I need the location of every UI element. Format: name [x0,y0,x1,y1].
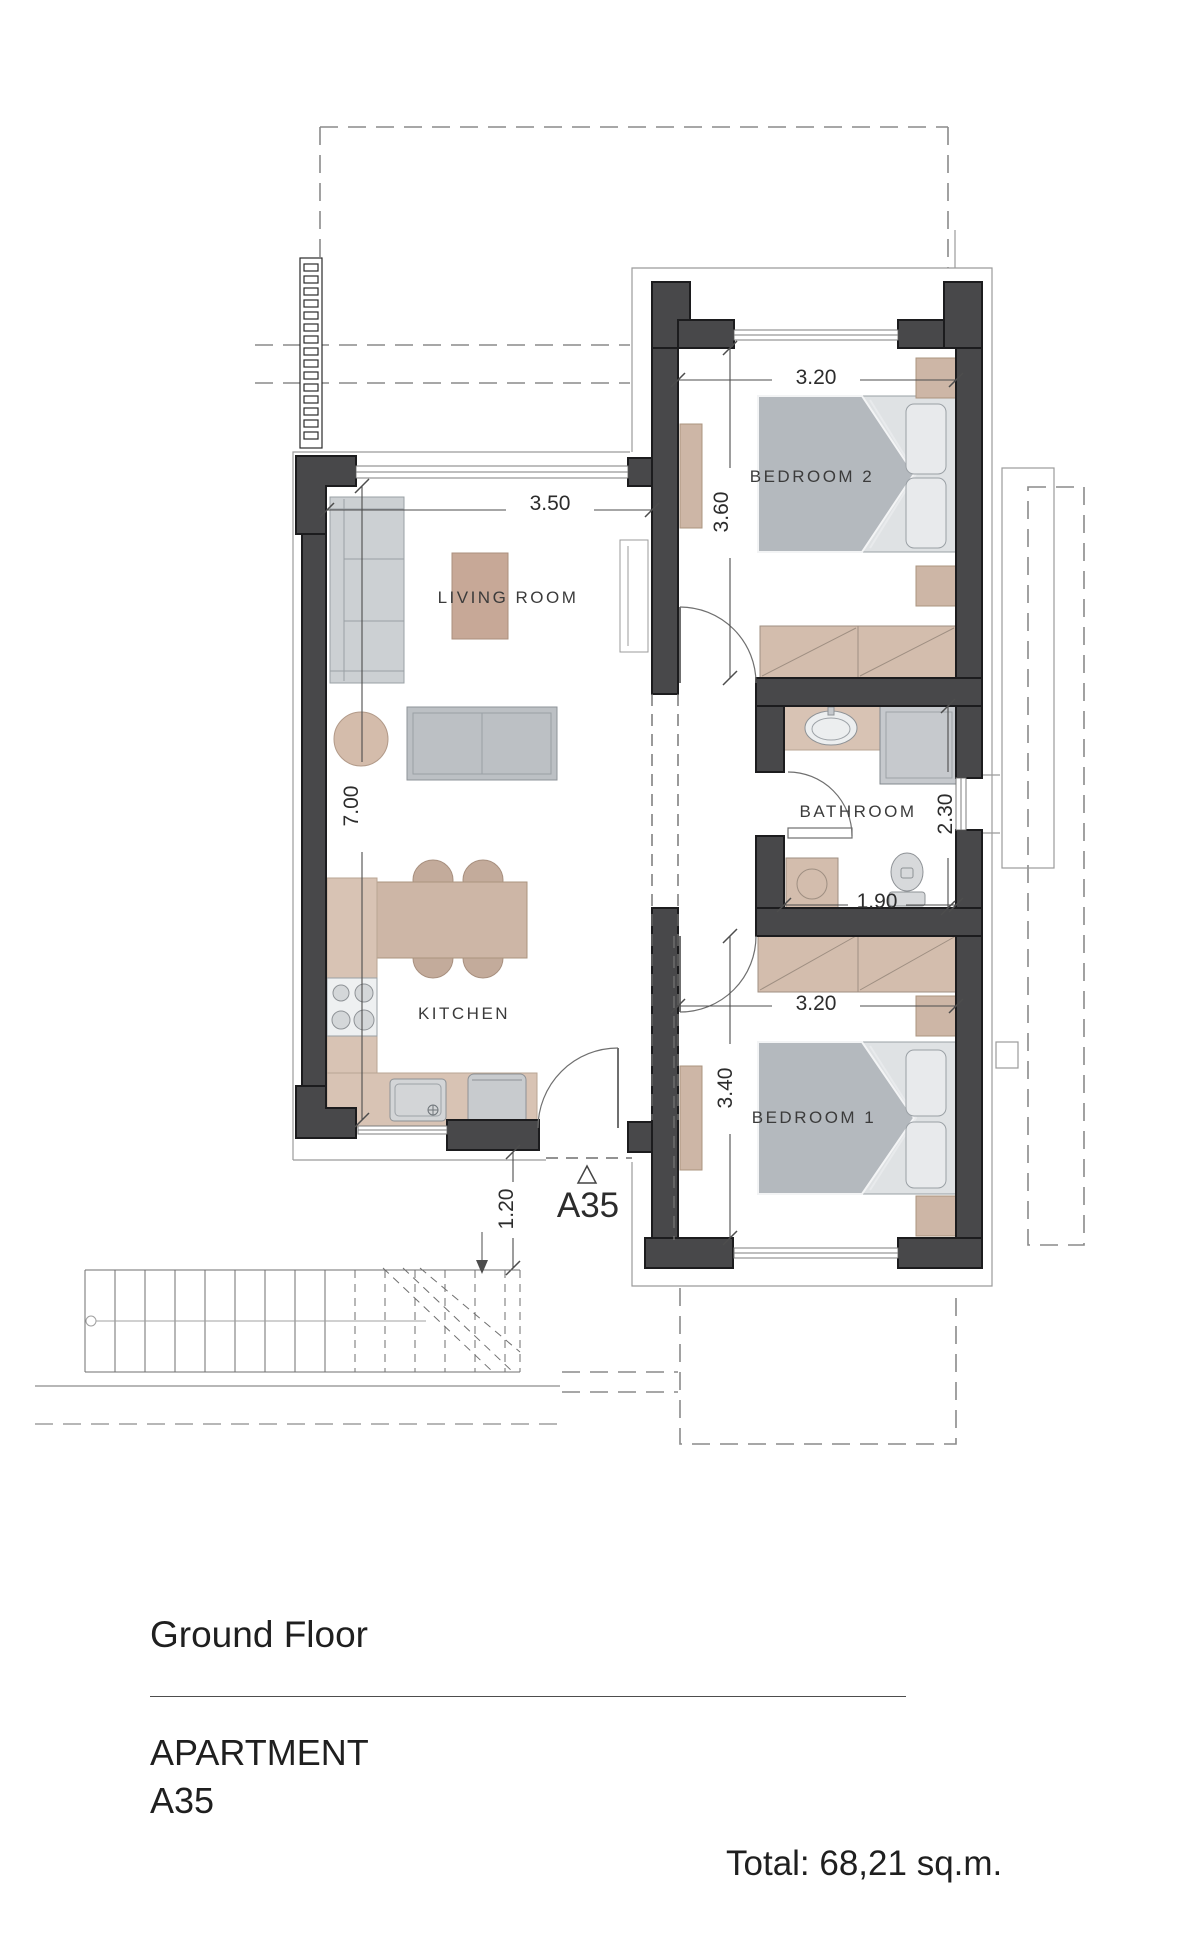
washing-machine [786,858,838,910]
bedroom2-door [680,607,756,683]
floor-plan-page: LIVING ROOM KITCHEN BEDROOM 2 BATHROOM B… [0,0,1200,1958]
dim-living-height: 7.00 [340,761,364,851]
apartment-type-label: APARTMENT [150,1732,369,1774]
total-area-label: Total: 68,21 sq.m. [726,1844,1002,1884]
living-room-window [356,466,628,478]
floor-plan-drawing [0,0,1200,1958]
kitchen-furniture [327,860,537,1127]
bedroom2-nightstand-bottom [916,566,958,606]
bedroom1-dresser [680,1066,702,1170]
entrance-door [538,1048,618,1128]
kitchen-window [358,1126,447,1134]
round-side-table [334,712,388,766]
stairs-walk-line [86,1316,426,1326]
footer-divider [150,1696,906,1697]
kitchen-sink [390,1079,446,1121]
bedroom1-window [734,1248,898,1258]
dim-bedroom1-width: 3.20 [771,992,861,1016]
dim-bedroom2-width: 3.20 [771,366,861,390]
kitchen-label: KITCHEN [354,1004,574,1024]
floor-title: Ground Floor [150,1614,368,1656]
stairs-up-arrow [476,1232,488,1274]
bedroom2-window [734,330,898,340]
dim-bedroom1-height: 3.40 [714,1043,738,1133]
living-room-label: LIVING ROOM [398,588,618,608]
dining-table [377,882,527,958]
bedroom1-wardrobe [758,934,958,992]
bedroom1-door [680,936,756,1012]
bedroom2-wardrobe [760,626,956,678]
bedroom1-nightstand-bottom [916,1196,958,1236]
bedroom1-nightstand-top [916,996,958,1036]
hatch-strip [300,258,322,448]
bedroom2-nightstand-top [916,358,958,398]
sofa [330,497,404,683]
apartment-unit-label: A35 [150,1780,214,1822]
dim-bathroom-width: 1.90 [832,890,922,914]
dim-bathroom-height: 2.30 [934,769,958,859]
stairs [35,1232,560,1424]
bedroom2-label: BEDROOM 2 [702,467,922,487]
living-room-furniture [330,497,648,780]
unit-marker-triangle-icon [578,1166,596,1183]
side-ledge-outline [982,468,1054,1068]
tv-bench [407,707,557,780]
bedroom2-sideboard [680,424,702,528]
kitchen-appliance [468,1074,526,1124]
unit-marker-label: A35 [508,1186,668,1226]
dim-living-width: 3.50 [505,492,595,516]
dim-bedroom2-height: 3.60 [710,467,734,557]
tv-cabinet [620,540,648,652]
